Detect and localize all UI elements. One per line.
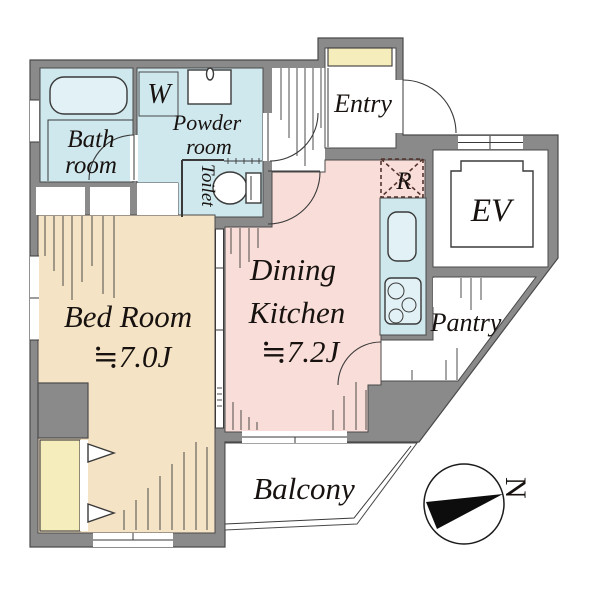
sink-faucet: [207, 68, 214, 80]
shoe-cabinet: [328, 48, 392, 66]
floor-plan: N Bath room Powder room Toilet W Entry R…: [0, 0, 600, 594]
compass: N: [424, 464, 532, 544]
bath-label-line1: Bath: [67, 126, 114, 153]
bedroom-closet: [40, 440, 80, 531]
elevator-label: EV: [470, 193, 515, 229]
balcony-label: Balcony: [253, 471, 355, 506]
bedroom-size-label: ≒7.0J: [93, 339, 173, 374]
powder-label-line2: room: [186, 134, 232, 159]
bath-label-line2: room: [65, 152, 117, 179]
balcony-sliding-window: [242, 431, 347, 443]
entry-label: Entry: [333, 89, 392, 118]
dk-label-line1: Dining: [249, 252, 336, 287]
washer-label: W: [147, 79, 173, 110]
bedroom-bottom-window: [93, 533, 173, 547]
pantry-label: Pantry: [430, 308, 502, 337]
powder-label-line1: Powder: [172, 110, 242, 135]
storage-box-left: [36, 187, 85, 215]
pantry-wall-niche: [433, 278, 449, 307]
closet-door-track: [80, 440, 88, 531]
wall-block: [38, 383, 88, 438]
elevator-door: [458, 136, 523, 149]
toilet-label: Toilet: [197, 164, 218, 207]
entry-door: [395, 80, 456, 133]
sliding-partition: [216, 229, 224, 428]
bath-window: [30, 100, 39, 142]
compass-north-label: N: [499, 477, 532, 499]
fridge-label: R: [395, 168, 411, 195]
bathtub: [50, 77, 127, 114]
dk-size-label: ≒7.2J: [261, 334, 341, 369]
kitchen-sink: [388, 212, 416, 261]
toilet-tank: [246, 173, 261, 203]
dk-label-line2: Kitchen: [248, 295, 345, 330]
storage-box-right: [137, 183, 178, 215]
floor-plan-canvas: N Bath room Powder room Toilet W Entry R…: [0, 0, 600, 594]
storage-box-mid: [90, 187, 130, 215]
bedroom-side-window: [30, 256, 39, 340]
bedroom-label: Bed Room: [64, 299, 192, 334]
